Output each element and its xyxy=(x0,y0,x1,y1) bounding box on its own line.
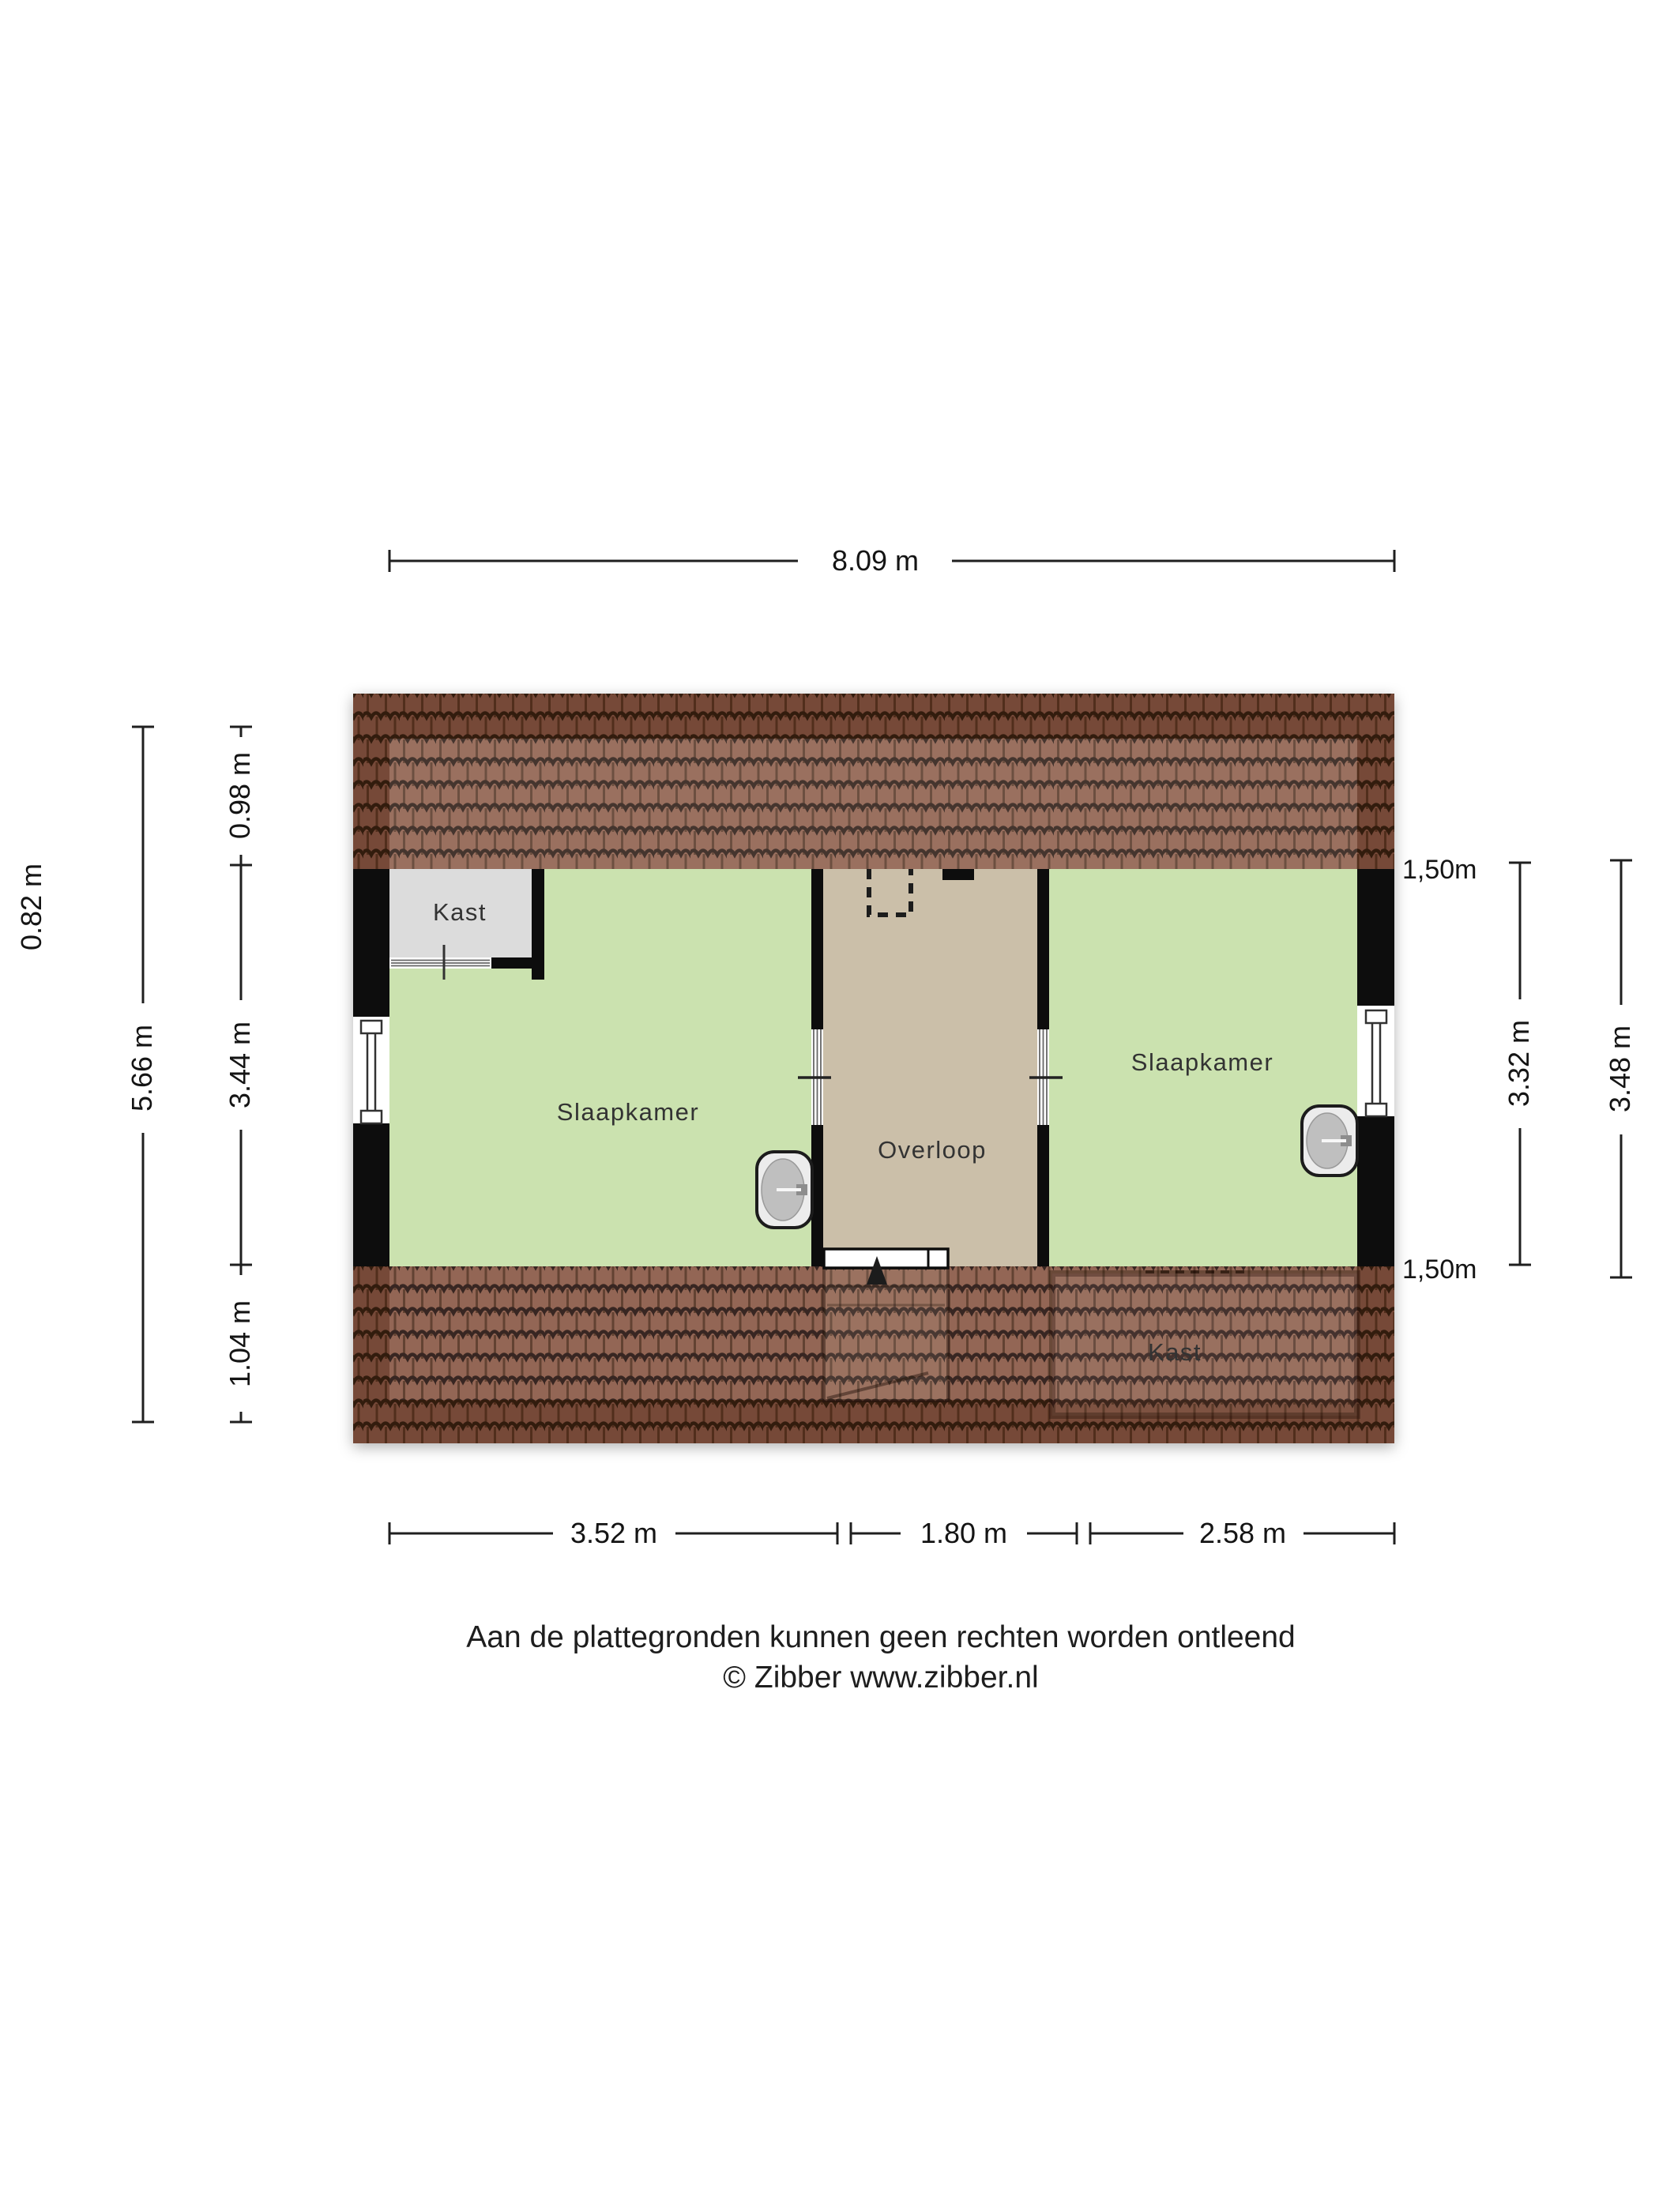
room-label-closet-top-left: Kast xyxy=(433,898,487,926)
dim-label-bottom-right: 2.58 m xyxy=(1199,1517,1286,1549)
headroom-label-top: 1,50m xyxy=(1402,855,1477,885)
floor-plan-drawing: Kast Slaapkamer Overloop Slaapkamer Kast… xyxy=(0,0,1659,2212)
dim-label-left-eave: 0.82 m xyxy=(15,863,47,950)
dim-label-right-outer: 3.48 m xyxy=(1604,1025,1636,1112)
dim-label-right-inner: 3.32 m xyxy=(1503,1020,1535,1107)
wall-closet-bottom xyxy=(491,957,544,969)
dim-top-width: 8.09 m xyxy=(389,544,1394,577)
dim-label-left-bottom: 1.04 m xyxy=(224,1300,256,1387)
wall-stub-top xyxy=(942,869,974,880)
dim-label-top-width: 8.09 m xyxy=(832,544,919,577)
floor-plan-page: Kast Slaapkamer Overloop Slaapkamer Kast… xyxy=(0,0,1659,2212)
footer-credit: © Zibber www.zibber.nl xyxy=(723,1661,1038,1695)
window-right-icon xyxy=(1357,1006,1394,1116)
dim-label-bottom-left: 3.52 m xyxy=(570,1517,657,1549)
sink-left-icon xyxy=(757,1152,812,1228)
sink-right-icon xyxy=(1302,1106,1357,1176)
dim-right-inner: 3.32 m xyxy=(1503,863,1535,1265)
room-label-bedroom-left: Slaapkamer xyxy=(557,1098,699,1126)
room-label-closet-under-roof: Kast xyxy=(1148,1338,1202,1366)
dim-left-segments: 0.98 m 3.44 m 1.04 m xyxy=(224,727,256,1422)
window-left-icon xyxy=(353,1017,389,1123)
dim-label-left-middle: 3.44 m xyxy=(224,1021,256,1108)
stairs-icon xyxy=(824,1249,948,1401)
closet-under-roof-outline xyxy=(1052,1272,1357,1416)
dim-label-bottom-middle: 1.80 m xyxy=(920,1517,1007,1549)
dim-bottom: 3.52 m 1.80 m 2.58 m xyxy=(389,1517,1394,1549)
room-landing xyxy=(823,869,1037,1266)
dim-left-total: 5.66 m xyxy=(126,727,158,1422)
dim-right-outer: 3.48 m xyxy=(1604,860,1636,1277)
footer-disclaimer: Aan de plattegronden kunnen geen rechten… xyxy=(466,1620,1296,1654)
room-label-bedroom-right: Slaapkamer xyxy=(1131,1048,1273,1076)
dim-label-left-total: 5.66 m xyxy=(126,1025,158,1112)
headroom-label-bottom: 1,50m xyxy=(1402,1255,1477,1285)
dim-label-left-top: 0.98 m xyxy=(224,752,256,839)
roof-top xyxy=(353,694,1394,869)
room-label-landing: Overloop xyxy=(878,1136,987,1164)
